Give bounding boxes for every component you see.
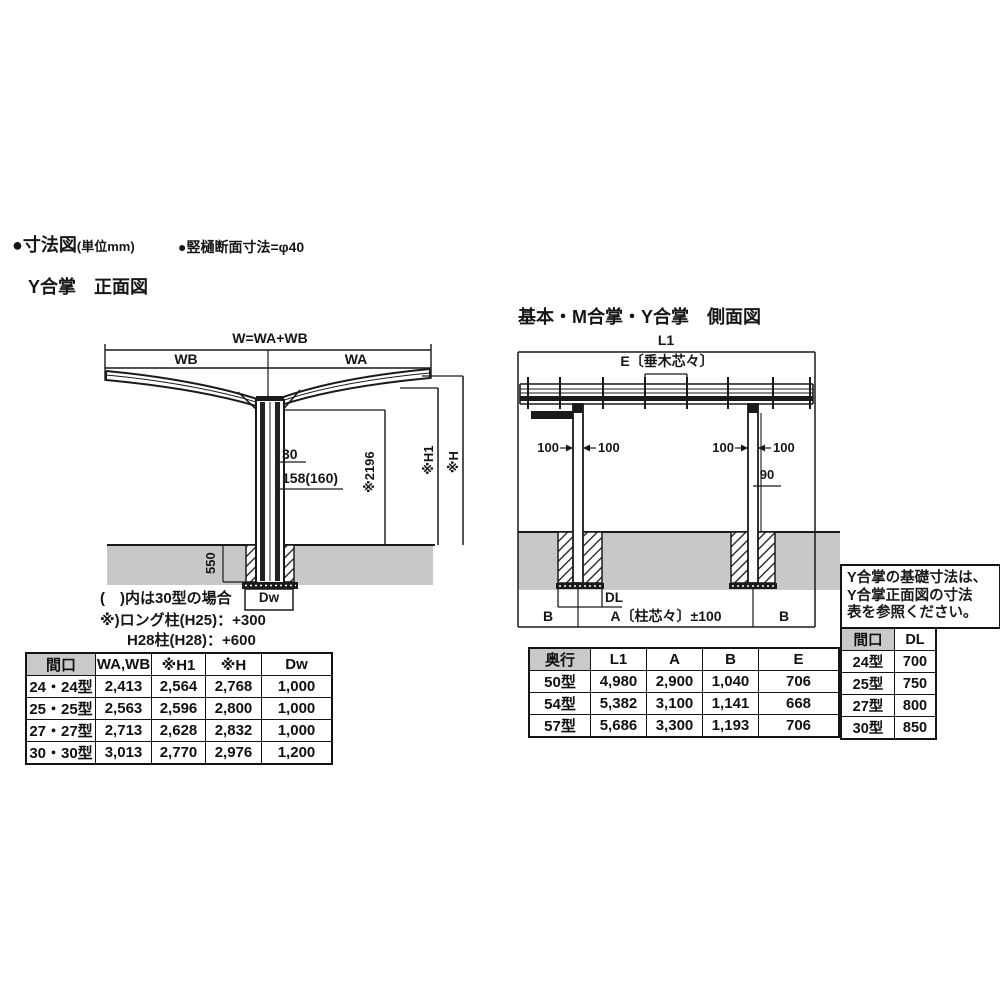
table-cell: 2,768 (206, 676, 262, 698)
column-header: DL (895, 628, 937, 651)
column-header: 間口 (26, 653, 96, 676)
table-row: 25・25型2,5632,5962,8001,000 (26, 698, 332, 720)
table-row: 27・27型2,7132,6282,8321,000 (26, 720, 332, 742)
table-cell: 3,100 (647, 693, 703, 715)
column-header: WA,WB (96, 653, 152, 676)
table-cell: 1,141 (703, 693, 759, 715)
table-cell: 5,686 (591, 715, 647, 738)
table-cell: 1,193 (703, 715, 759, 738)
table-cell: 2,563 (96, 698, 152, 720)
dim-wb: WB (160, 352, 212, 367)
column-header: A (647, 648, 703, 671)
table-cell: 2,832 (206, 720, 262, 742)
table-cell: 2,713 (96, 720, 152, 742)
table-header-row: 間口WA,WB※H1※HDw (26, 653, 332, 676)
dim-100-right-outer: 100 (701, 441, 734, 455)
table-row: 50型4,9802,9001,040706 (529, 671, 839, 693)
dim-wa: WA (330, 352, 382, 367)
reference-note-line: Y合掌正面図の寸法 (847, 588, 995, 606)
dim-30: 30 (282, 447, 298, 462)
column-header: L1 (591, 648, 647, 671)
table-cell: 2,413 (96, 676, 152, 698)
table-header-row: 奥行L1ABE (529, 648, 839, 671)
table-cell: 2,564 (152, 676, 206, 698)
dim-100-right-inner: 100 (773, 441, 806, 455)
dim-a-span: A〔柱芯々〕±100 (586, 609, 746, 624)
table-cell: 1,040 (703, 671, 759, 693)
table-cell: 54型 (529, 693, 591, 715)
table-cell: 25型 (841, 673, 895, 695)
table-cell: 57型 (529, 715, 591, 738)
legend-note: ●竪樋断面寸法=φ40 (178, 240, 304, 255)
front-note-3: H28柱(H28)：+600 (127, 633, 256, 650)
dim-dl: DL (605, 591, 623, 606)
table-row: 27型800 (841, 695, 936, 717)
table-cell: 27・27型 (26, 720, 96, 742)
legend-title-unit: (単位mm) (77, 239, 135, 254)
table-cell: 2,596 (152, 698, 206, 720)
table-row: 30・30型3,0132,7702,9761,200 (26, 742, 332, 765)
front-dimension-table: 間口WA,WB※H1※HDw24・24型2,4132,5642,7681,000… (25, 652, 333, 765)
table-cell: 1,000 (262, 676, 333, 698)
table-cell: 706 (759, 715, 840, 738)
table-cell: 3,300 (647, 715, 703, 738)
front-note-1: ( )内は30型の場合 (100, 591, 232, 608)
dim-100-left-inner: 100 (598, 441, 631, 455)
dim-b-right: B (766, 609, 802, 624)
table-cell: 2,628 (152, 720, 206, 742)
table-row: 24型700 (841, 651, 936, 673)
table-cell: 30・30型 (26, 742, 96, 765)
dim-dw: Dw (254, 591, 284, 606)
table-cell: 800 (895, 695, 937, 717)
dim-w-total: W=WA+WB (205, 331, 335, 346)
table-cell: 3,013 (96, 742, 152, 765)
table-cell: 25・25型 (26, 698, 96, 720)
column-header: B (703, 648, 759, 671)
table-cell: 30型 (841, 717, 895, 740)
dim-90: 90 (754, 468, 780, 482)
table-row: 54型5,3823,1001,141668 (529, 693, 839, 715)
column-header: E (759, 648, 840, 671)
legend-title-main: ●寸法図 (12, 235, 77, 255)
table-row: 24・24型2,4132,5642,7681,000 (26, 676, 332, 698)
side-view-title: 基本・M合掌・Y合掌 側面図 (518, 308, 761, 328)
table-cell: 1,000 (262, 720, 333, 742)
table-cell: 700 (895, 651, 937, 673)
dimension-drawing (0, 0, 1000, 1000)
table-cell: 2,800 (206, 698, 262, 720)
foundation-dimension-table-grid: 間口DL24型70025型75027型80030型850 (840, 627, 937, 740)
reference-note-line: Y合掌の基礎寸法は、 (847, 570, 995, 588)
reference-note-box: Y合掌の基礎寸法は、 Y合掌正面図の寸法 表を参照ください。 (840, 564, 1000, 629)
dim-e-taruki: E〔垂木芯々〕 (594, 354, 740, 369)
table-row: 25型750 (841, 673, 936, 695)
foundation-dimension-table: 間口DL24型70025型75027型80030型850 (840, 627, 937, 740)
front-dimension-table-grid: 間口WA,WB※H1※HDw24・24型2,4132,5642,7681,000… (25, 652, 333, 765)
dim-l1: L1 (640, 333, 692, 348)
table-cell: 2,770 (152, 742, 206, 765)
column-header: ※H (206, 653, 262, 676)
dim-100-left-outer: 100 (526, 441, 559, 455)
table-cell: 750 (895, 673, 937, 695)
column-header: 間口 (841, 628, 895, 651)
table-cell: 27型 (841, 695, 895, 717)
table-cell: 1,000 (262, 698, 333, 720)
side-dimension-table: 奥行L1ABE50型4,9802,9001,04070654型5,3823,10… (528, 647, 840, 738)
front-note-2: ※)ロング柱(H25)：+300 (100, 613, 266, 630)
table-cell: 24型 (841, 651, 895, 673)
reference-note-line: 表を参照ください。 (847, 605, 995, 623)
catalog-dimension-page: ●寸法図(単位mm) ●竪樋断面寸法=φ40 Y合掌 正面図 W=WA+WB W… (0, 0, 1000, 1000)
side-view-drawing (518, 352, 840, 627)
dim-b-left: B (530, 609, 566, 624)
dim-h1: ※H1 (422, 438, 436, 482)
column-header: Dw (262, 653, 333, 676)
table-cell: 850 (895, 717, 937, 740)
column-header: 奥行 (529, 648, 591, 671)
table-cell: 5,382 (591, 693, 647, 715)
table-cell: 668 (759, 693, 840, 715)
table-cell: 706 (759, 671, 840, 693)
dim-158-160: 158(160) (282, 471, 338, 486)
side-dimension-table-grid: 奥行L1ABE50型4,9802,9001,04070654型5,3823,10… (528, 647, 840, 738)
dim-550: 550 (204, 544, 218, 582)
dim-h: ※H (447, 442, 461, 482)
table-cell: 1,200 (262, 742, 333, 765)
table-cell: 50型 (529, 671, 591, 693)
table-cell: 24・24型 (26, 676, 96, 698)
table-row: 57型5,6863,3001,193706 (529, 715, 839, 738)
table-row: 30型850 (841, 717, 936, 740)
dim-2196: ※2196 (363, 439, 377, 505)
table-cell: 4,980 (591, 671, 647, 693)
legend-title: ●寸法図(単位mm) (12, 236, 135, 256)
front-view-title: Y合掌 正面図 (28, 278, 148, 298)
table-cell: 2,976 (206, 742, 262, 765)
column-header: ※H1 (152, 653, 206, 676)
table-cell: 2,900 (647, 671, 703, 693)
table-header-row: 間口DL (841, 628, 936, 651)
